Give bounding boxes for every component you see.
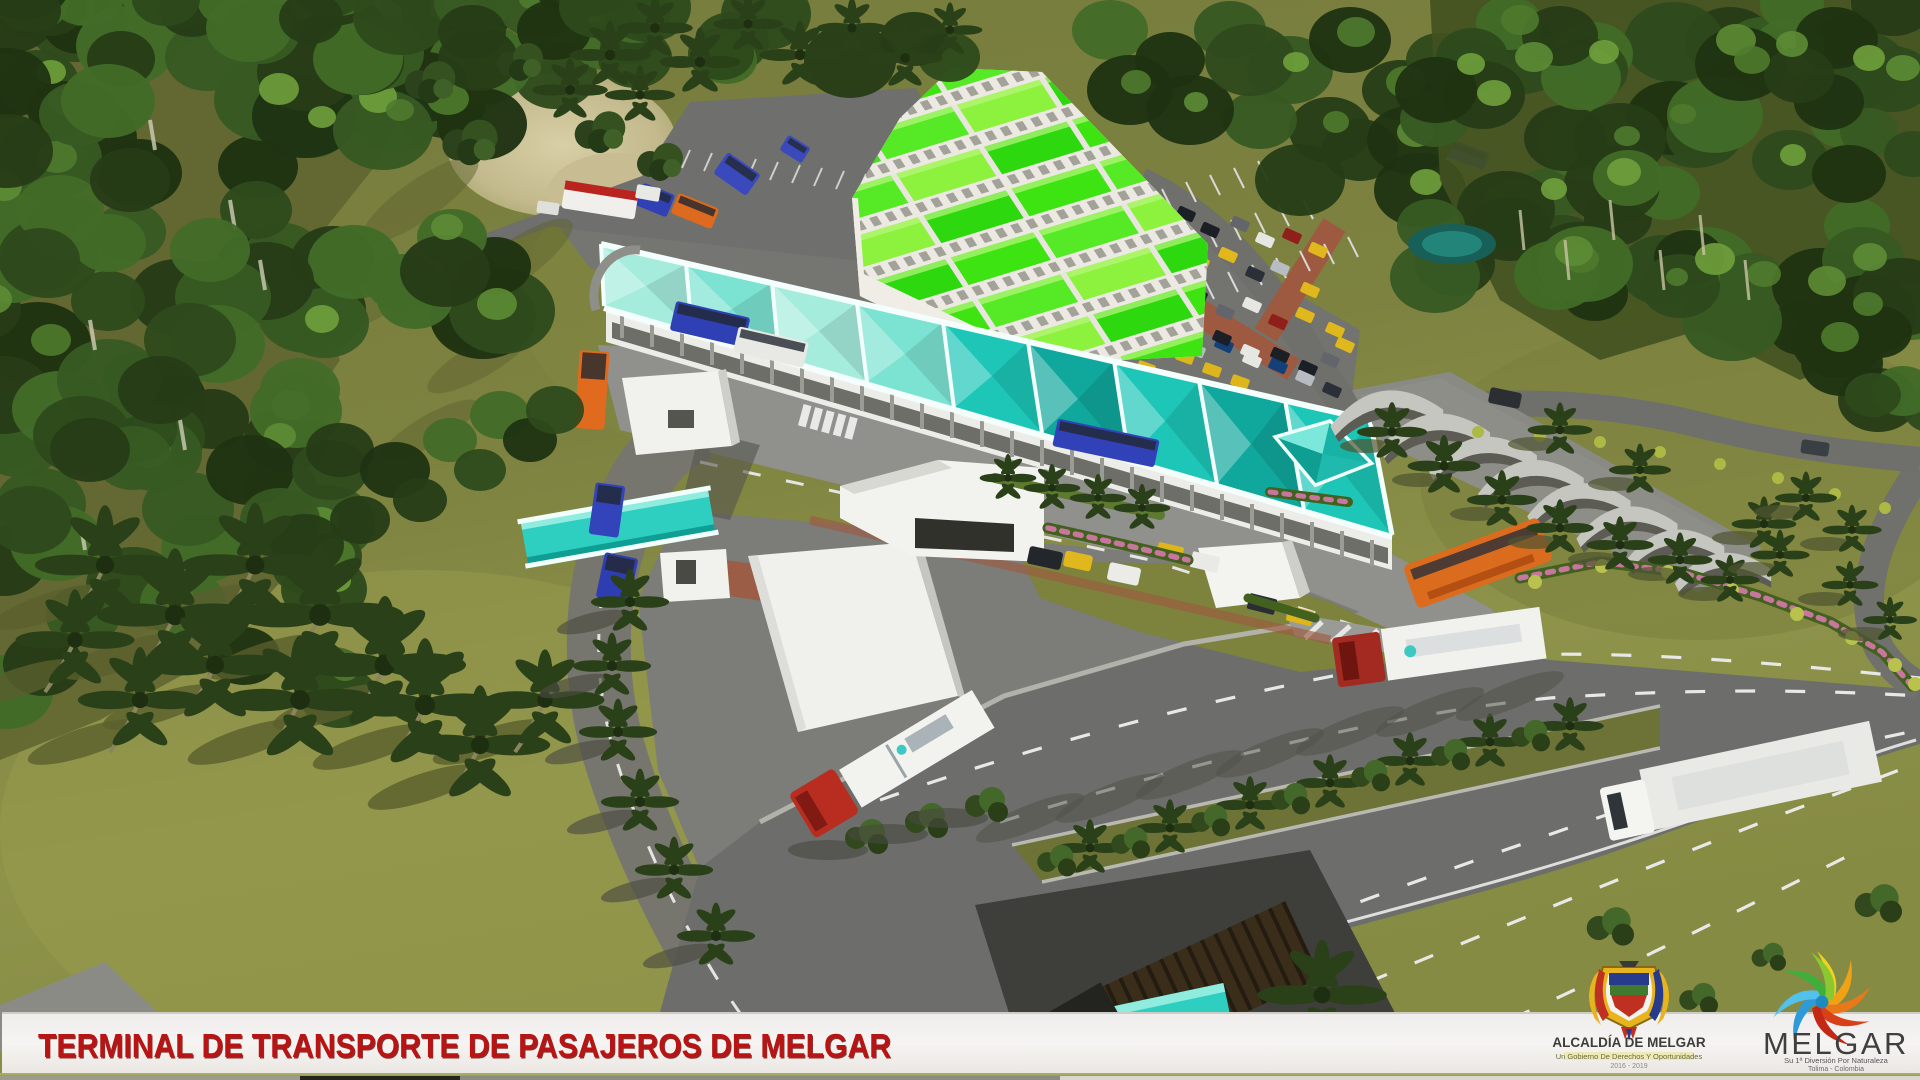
svg-text:TERMINAL DE TRANSPORTE DE PASA: TERMINAL DE TRANSPORTE DE PASAJEROS DE M… (38, 1027, 891, 1064)
svg-text:2016 - 2019: 2016 - 2019 (1610, 1063, 1647, 1070)
svg-text:Un Gobierno De Derechos Y Opor: Un Gobierno De Derechos Y Oportunidades (1556, 1052, 1703, 1061)
svg-text:ALCALDÍA DE MELGAR: ALCALDÍA DE MELGAR (1552, 1035, 1705, 1050)
svg-text:Su 1ª Diversión Por Naturaleza: Su 1ª Diversión Por Naturaleza (1784, 1056, 1888, 1065)
svg-text:Tolima - Colombia: Tolima - Colombia (1808, 1066, 1864, 1073)
